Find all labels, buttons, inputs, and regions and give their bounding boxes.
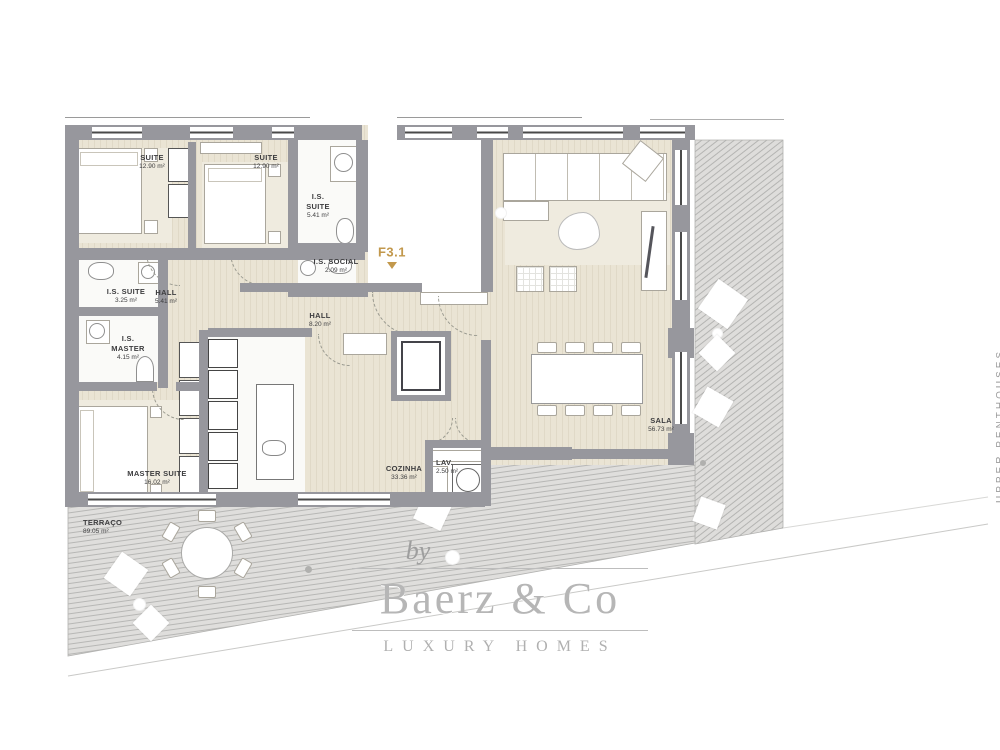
- window: [675, 352, 687, 424]
- dining-chair: [565, 405, 585, 416]
- room-area: 5.41 m²: [146, 298, 186, 306]
- terrace-outline: [650, 119, 784, 120]
- room-label-master-suite: MASTER SUITE 16.02 m²: [107, 469, 207, 487]
- dining-chair: [593, 342, 613, 353]
- wall-segment: [158, 255, 168, 388]
- wall-segment: [288, 243, 368, 252]
- sink-icon: [334, 153, 353, 172]
- tv-icon: [644, 226, 654, 278]
- room-area: 2.50 m²: [436, 468, 476, 476]
- terrace-chair: [198, 586, 216, 598]
- sill-line: [397, 117, 582, 118]
- pouf: [516, 266, 544, 292]
- kitchen-cabinet: [208, 463, 238, 489]
- terrace-dot: [700, 460, 706, 466]
- room-name: MASTER SUITE: [107, 469, 207, 479]
- room-name: I.S. SUITE: [300, 192, 336, 212]
- sliding-door: [88, 494, 216, 505]
- nightstand: [144, 220, 158, 234]
- room-label-sala: SALA 56.73 m²: [636, 416, 686, 434]
- room-area: 16.02 m²: [107, 479, 207, 487]
- room-area: 12.90 m²: [236, 163, 296, 171]
- dining-table: [531, 354, 643, 404]
- room-name: LAV.: [436, 458, 476, 468]
- wardrobe-master: [179, 342, 201, 378]
- toilet-icon: [88, 262, 114, 280]
- dining-chair: [621, 405, 641, 416]
- wall-segment: [425, 440, 487, 448]
- wall-segment: [65, 307, 165, 316]
- side-caption: UPPER PENTHOUSES: [995, 328, 1000, 503]
- room-label-suite-1: SUITE 12.90 m²: [122, 153, 182, 171]
- toilet-icon: [336, 218, 354, 244]
- room-name: HALL: [300, 311, 340, 321]
- round-table: [181, 527, 233, 579]
- sofa-chaise: [503, 201, 549, 221]
- kitchen-sink-icon: [262, 440, 286, 456]
- entrance-arrow-icon: [387, 262, 397, 269]
- window: [523, 127, 623, 138]
- wall-segment: [490, 447, 572, 460]
- room-label-cozinha: COZINHA 33.36 m²: [374, 464, 434, 482]
- kitchen-cabinet: [208, 370, 238, 399]
- window: [477, 127, 508, 138]
- window: [675, 232, 687, 300]
- room-label-is-social: I.S. SOCIAL 2.09 m²: [307, 257, 365, 275]
- room-name: TERRAÇO: [83, 518, 153, 528]
- wall-segment: [481, 440, 491, 506]
- room-name: COZINHA: [374, 464, 434, 474]
- wall-segment: [356, 140, 368, 250]
- appliance-icon: [401, 341, 441, 391]
- deck-edge-line-2: [783, 497, 988, 528]
- coffee-table: [558, 212, 600, 250]
- wall-segment: [208, 328, 312, 337]
- floor-plan: SUITE 12.90 m² SUITE 12.90 m² I.S. SUITE…: [0, 0, 1000, 750]
- dining-chair: [565, 342, 585, 353]
- nightstand: [268, 231, 281, 244]
- window: [405, 127, 452, 138]
- logo-brand-text: Baerz & Co: [352, 569, 648, 630]
- room-area: 5.41 m²: [300, 212, 336, 220]
- wardrobe-master: [179, 418, 201, 454]
- dining-chair: [621, 342, 641, 353]
- room-area: 4.15 m²: [108, 354, 148, 362]
- room-label-hall-large: HALL 8.20 m²: [300, 311, 340, 329]
- window: [272, 127, 294, 138]
- bed-suite-2: [204, 164, 266, 244]
- side-table: [495, 207, 507, 219]
- wall-segment: [188, 142, 196, 250]
- terrace-dot: [305, 566, 312, 573]
- entrance-court: [368, 140, 481, 292]
- wardrobe: [168, 184, 190, 218]
- room-area: 89.05 m²: [83, 528, 153, 536]
- window: [675, 150, 687, 205]
- room-name: SUITE: [122, 153, 182, 163]
- window: [640, 127, 685, 138]
- dining-chair: [593, 405, 613, 416]
- wall-segment: [481, 140, 493, 292]
- room-label-hall-small: HALL 5.41 m²: [146, 288, 186, 306]
- tv-unit: [641, 211, 667, 291]
- room-label-lav: LAV. 2.50 m²: [436, 458, 476, 476]
- sill-line: [65, 117, 310, 118]
- dining-chair: [537, 342, 557, 353]
- logo-by-text: by: [270, 536, 566, 566]
- unit-label: F3.1: [378, 245, 406, 260]
- wall-segment: [240, 283, 422, 292]
- window: [92, 127, 142, 138]
- room-name: SALA: [636, 416, 686, 426]
- room-area: 2.09 m²: [307, 267, 365, 275]
- room-name: SUITE: [236, 153, 296, 163]
- sink-icon: [89, 323, 105, 339]
- room-name: HALL: [146, 288, 186, 298]
- kitchen-cabinet: [208, 432, 238, 461]
- wall-segment: [65, 382, 157, 391]
- terrace-chair: [198, 510, 216, 522]
- sliding-door: [298, 494, 390, 505]
- room-area: 8.20 m²: [300, 321, 340, 329]
- room-name: I.S. MASTER: [108, 334, 148, 354]
- room-label-suite-2: SUITE 12.90 m²: [236, 153, 296, 171]
- room-area: 33.36 m²: [374, 474, 434, 482]
- brand-logo: by Baerz & Co LUXURY HOMES: [352, 536, 648, 656]
- window: [190, 127, 233, 138]
- kitchen-island: [256, 384, 294, 480]
- terrace-plant: [133, 598, 146, 611]
- room-label-is-suite-top: I.S. SUITE 5.41 m²: [300, 192, 336, 220]
- logo-rule: [352, 630, 648, 631]
- wall-pier: [668, 433, 694, 465]
- room-label-terraco: TERRAÇO 89.05 m²: [83, 518, 153, 536]
- wall-segment: [481, 340, 491, 440]
- room-area: 56.73 m²: [636, 426, 686, 434]
- room-area: 12.90 m²: [122, 163, 182, 171]
- kitchen-cabinet: [208, 401, 238, 430]
- pillow: [80, 410, 94, 492]
- dining-chair: [537, 405, 557, 416]
- logo-tagline-text: LUXURY HOMES: [352, 638, 648, 656]
- kitchen-cabinet: [208, 339, 238, 368]
- pouf: [549, 266, 577, 292]
- room-label-is-master: I.S. MASTER 4.15 m²: [108, 334, 148, 362]
- wall-segment: [65, 125, 79, 507]
- room-name: I.S. SOCIAL: [307, 257, 365, 267]
